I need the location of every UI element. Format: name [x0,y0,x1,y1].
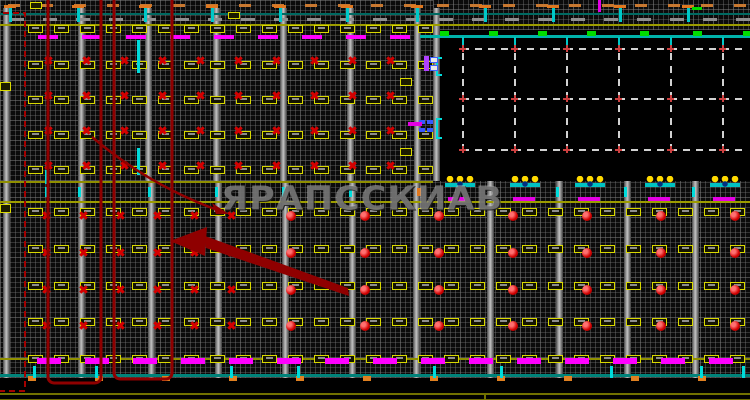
fixture-tag [106,25,121,33]
fixture-tag [418,131,433,139]
fixture-tag [678,208,693,216]
edge-dash [373,18,387,21]
device-cross-marker [153,285,162,294]
magenta-strip [258,35,278,39]
sprinkler-dot-marker [730,248,740,258]
edge-dash [701,4,713,7]
fixture-tag [132,245,147,253]
device-cross-marker [310,161,319,170]
magenta-strip [38,35,58,39]
fixture-tag [106,61,121,69]
device-cross-marker [386,161,395,170]
edge-dash [109,18,123,21]
edge-dash [635,4,647,7]
edge-dash [602,4,614,7]
fixture-tag [392,282,407,290]
fixture-tag [236,25,251,33]
cyan-tick [137,40,140,73]
fixture-tag [366,96,381,104]
edge-dash [41,4,53,7]
device-cross-marker [42,321,51,330]
sprinkler-dot-marker [730,321,740,331]
grid-node-cross [719,95,726,102]
device-cross-marker [272,126,281,135]
fixture-tag [288,131,303,139]
magenta-strip [709,358,733,364]
fixture-tag [678,282,693,290]
device-cross-marker [153,321,162,330]
device-cross-marker [227,321,236,330]
device-cross-marker [196,91,205,100]
fixture-tag [314,318,329,326]
fixture-tag [236,318,251,326]
fixture-tag [132,25,147,33]
device-cross-marker [79,285,88,294]
device-cross-marker [386,126,395,135]
fixture-tag [418,245,433,253]
fixture-tag [54,61,69,69]
device-cross-marker [234,91,243,100]
green-node [640,31,649,36]
edge-dash [175,18,189,21]
cyan-tick [137,148,140,175]
device-cross-marker [310,126,319,135]
device-cross-marker [310,91,319,100]
fixture-tag [678,318,693,326]
magenta-strip [277,358,301,364]
magenta-strip [373,358,397,364]
fixture-tag [626,208,641,216]
device-cross-marker [196,56,205,65]
fixture-tag [80,25,95,33]
fixture-tag [470,318,485,326]
device-cross-marker [386,56,395,65]
edge-dash [571,18,585,21]
magenta-strip [469,358,493,364]
magenta-strip [661,358,685,364]
label-box [228,12,240,19]
fixture-tag [288,25,303,33]
white-box [430,57,438,63]
orange-support-mark [162,376,170,381]
white-box [430,65,438,71]
fixture-tag [392,245,407,253]
orange-support-mark [363,376,371,381]
green-node [538,31,547,36]
fixture-tag [418,166,433,174]
label-box [400,78,412,86]
sprinkler-dot-marker [286,248,296,258]
device-cross-marker [79,248,88,257]
device-cross-marker [234,161,243,170]
edge-dash [305,4,317,7]
edge-dash [569,4,581,7]
device-cross-marker [158,91,167,100]
fixture-tag [210,282,225,290]
device-cross-marker [234,56,243,65]
device-cross-marker [44,126,53,135]
edge-dash [437,4,449,7]
sprinkler-dot-marker [582,321,592,331]
device-cross-marker [116,211,125,220]
cyan-tick [556,187,559,197]
column-bar [414,8,421,181]
fixture-tag [366,166,381,174]
device-cross-marker [82,126,91,135]
fixture-tag [340,245,355,253]
column-bar [280,8,287,181]
magenta-strip [133,358,157,364]
fixture-tag [704,318,719,326]
hanger-stem [552,8,555,22]
fixture-tag [106,166,121,174]
orange-support-mark [631,376,639,381]
grid-node-cross [667,146,674,153]
blue-dash [427,128,433,132]
grid-node-cross [459,146,466,153]
fixture-tag [522,245,537,253]
hanger-stem [144,8,147,22]
column-bar [433,8,440,181]
cyan-tick [230,366,233,378]
purple-bar [424,56,429,71]
edge-dash [734,4,746,7]
device-cross-marker [386,91,395,100]
edge-dash [670,18,684,21]
sprinkler-dot-marker [656,285,666,295]
fixture-tag [366,61,381,69]
grid-node-cross [719,45,726,52]
fixture-tag [262,25,277,33]
device-cross-marker [116,321,125,330]
device-cross-marker [79,321,88,330]
green-node [489,31,498,36]
device-cross-marker [82,161,91,170]
sprinkler-dot-marker [508,285,518,295]
device-cross-marker [196,161,205,170]
grid-node-cross [563,45,570,52]
magenta-strip [37,358,61,364]
grid-node-cross [667,45,674,52]
hanger-stem [279,8,282,22]
blue-dash [427,120,433,124]
fixture-tag [340,282,355,290]
fixture-tag [132,131,147,139]
cad-drawing-canvas[interactable]: ЯРАПССКИАВ [0,0,750,400]
device-cross-marker [153,211,162,220]
fixture-tag [626,282,641,290]
device-cross-marker [42,285,51,294]
hanger-stem [687,8,690,22]
green-node [587,31,596,36]
fixture-tag [132,282,147,290]
magenta-strip [408,122,422,126]
drawing-line [0,393,750,395]
green-node [440,31,449,36]
device-cross-marker [42,211,51,220]
fixture-tag [210,61,225,69]
fixture-tag [548,355,563,363]
edge-dash [10,18,24,21]
device-cross-marker [190,248,199,257]
fixture-tag [340,25,355,33]
green-node [743,31,750,36]
fixture-tag [314,25,329,33]
device-cross-marker [120,161,129,170]
device-cross-marker [348,56,357,65]
diffuser-symbol [710,176,740,187]
label-box [0,204,11,213]
device-cross-marker [234,126,243,135]
hanger-stem [77,8,80,22]
fixture-tag [366,25,381,33]
cyan-tick [700,366,703,378]
sprinkler-dot-marker [508,321,518,331]
fixture-tag [444,245,459,253]
magenta-strip [513,197,535,201]
device-cross-marker [196,126,205,135]
sprinkler-dot-marker [582,248,592,258]
magenta-strip [126,35,146,39]
grid-node-cross [667,95,674,102]
magenta-strip [302,35,322,39]
cyan-tick [500,366,503,378]
magenta-strip [517,358,541,364]
fixture-tag [132,208,147,216]
fixture-tag [314,245,329,253]
edge-dash [371,4,383,7]
fixture-tag [704,245,719,253]
drawing-line [0,13,750,15]
device-cross-marker [190,321,199,330]
fixture-tag [288,61,303,69]
device-cross-marker [272,91,281,100]
hanger-stem [416,8,419,22]
device-cross-marker [272,56,281,65]
magenta-strip [421,358,445,364]
fixture-tag [132,318,147,326]
sprinkler-dot-marker [508,248,518,258]
fixture-tag [340,318,355,326]
label-box [400,148,412,156]
fixture-tag [158,355,173,363]
fixture-tag [28,61,43,69]
fixture-tag [210,166,225,174]
fixture-tag [548,318,563,326]
magenta-strip [346,35,366,39]
hanger-stem [9,8,12,22]
cyan-tick [148,187,151,197]
sprinkler-dot-marker [730,211,740,221]
grid-node-cross [459,45,466,52]
device-cross-marker [120,91,129,100]
cyan-tick [95,366,98,378]
device-cross-marker [153,248,162,257]
grid-node-cross [615,146,622,153]
fixture-tag [28,318,43,326]
fixture-tag [54,96,69,104]
magenta-strip [390,35,410,39]
fixture-tag [522,208,537,216]
fixture-tag [54,25,69,33]
edge-dash [43,18,57,21]
sprinkler-dot-marker [656,321,666,331]
fixture-tag [28,245,43,253]
sprinkler-dot-marker [434,285,444,295]
cyan-tick [45,170,48,184]
fixture-tag [470,245,485,253]
sprinkler-dot-marker [360,285,370,295]
device-cross-marker [120,126,129,135]
fixture-tag [210,318,225,326]
magenta-strip [181,358,205,364]
sprinkler-dot-marker [656,248,666,258]
edge-dash [736,18,750,21]
cyan-tick [33,366,36,378]
device-cross-marker [79,211,88,220]
dashed-gridline-h [462,98,748,100]
device-cross-marker [116,285,125,294]
device-cross-marker [42,248,51,257]
sprinkler-dot-marker [434,321,444,331]
edge-dash [604,18,618,21]
cyan-tick [215,187,218,197]
diffuser-symbol [645,176,675,187]
sprinkler-dot-marker [730,285,740,295]
fixture-tag [418,318,433,326]
magenta-strip [613,358,637,364]
device-cross-marker [348,161,357,170]
grid-node-cross [615,95,622,102]
edge-dash [503,4,515,7]
magenta-strip [648,197,670,201]
fixture-tag [236,245,251,253]
fixture-tag [548,208,563,216]
device-cross-marker [348,91,357,100]
fixture-tag [28,131,43,139]
fixture-tag [210,131,225,139]
edge-dash [173,4,185,7]
fixture-tag [418,282,433,290]
fixture-tag [28,208,43,216]
fixture-tag [392,318,407,326]
edge-dash [668,4,680,7]
fixture-tag [262,355,277,363]
fixture-tag [444,318,459,326]
fixture-tag [28,96,43,104]
device-cross-marker [190,211,199,220]
hanger-stem [346,8,349,22]
magenta-strip [85,358,109,364]
edge-dash [107,4,119,7]
fixture-tag [600,318,615,326]
label-box [0,82,11,91]
magenta-strip [713,197,735,201]
column-bar [3,8,10,181]
fixture-tag [210,245,225,253]
fixture-tag [132,96,147,104]
device-cross-marker [348,126,357,135]
fixture-tag [236,282,251,290]
orange-support-mark [564,376,572,381]
fixture-tag [600,208,615,216]
watermark: ЯРАПССКИАВ [221,180,503,214]
device-cross-marker [120,56,129,65]
fixture-tag [314,282,329,290]
cyan-tick [742,366,745,378]
cyan-tick [610,366,613,378]
fixture-tag [548,282,563,290]
sprinkler-dot-marker [582,285,592,295]
fixture-tag [678,245,693,253]
dashed-gridline-h [462,48,748,50]
fixture-tag [288,96,303,104]
cyan-tick [45,187,48,197]
fixture-tag [262,282,277,290]
fixture-tag [392,25,407,33]
edge-dash [703,18,717,21]
drawing-line [484,393,486,400]
grid-node-cross [719,146,726,153]
edge-dash [505,18,519,21]
fixture-tag [288,166,303,174]
sprinkler-dot-marker [286,285,296,295]
sprinkler-dot-marker [434,248,444,258]
sprinkler-dot-marker [286,321,296,331]
dashed-gridline-h [462,149,748,151]
device-cross-marker [190,285,199,294]
grid-node-cross [511,45,518,52]
label-box [30,2,42,9]
magenta-tick [598,0,601,12]
device-cross-marker [82,91,91,100]
fixture-tag [548,245,563,253]
grid-node-cross [459,95,466,102]
magenta-strip [82,35,102,39]
sprinkler-dot-marker [582,211,592,221]
column-bar [692,181,699,378]
grid-node-cross [511,95,518,102]
sprinkler-dot-marker [360,248,370,258]
sprinkler-dot-marker [508,211,518,221]
fixture-tag [418,96,433,104]
hanger-stem [211,8,214,22]
device-cross-marker [158,56,167,65]
cyan-tick [433,366,436,378]
diffuser-symbol [510,176,540,187]
fixture-tag [210,96,225,104]
fixture-tag [496,355,511,363]
edge-dash [538,18,552,21]
magenta-strip [214,35,234,39]
fixture-tag [522,282,537,290]
column-bar [213,8,220,181]
edge-dash [439,18,453,21]
fixture-tag [470,282,485,290]
fixture-tag [600,282,615,290]
grid-node-cross [563,95,570,102]
fixture-tag [262,318,277,326]
fixture-tag [444,355,459,363]
column-bar [145,8,152,181]
fixture-tag [28,25,43,33]
grid-node-cross [511,146,518,153]
fixture-tag [600,245,615,253]
magenta-strip [170,35,190,39]
device-cross-marker [82,56,91,65]
fixture-tag [262,245,277,253]
device-cross-marker [227,248,236,257]
